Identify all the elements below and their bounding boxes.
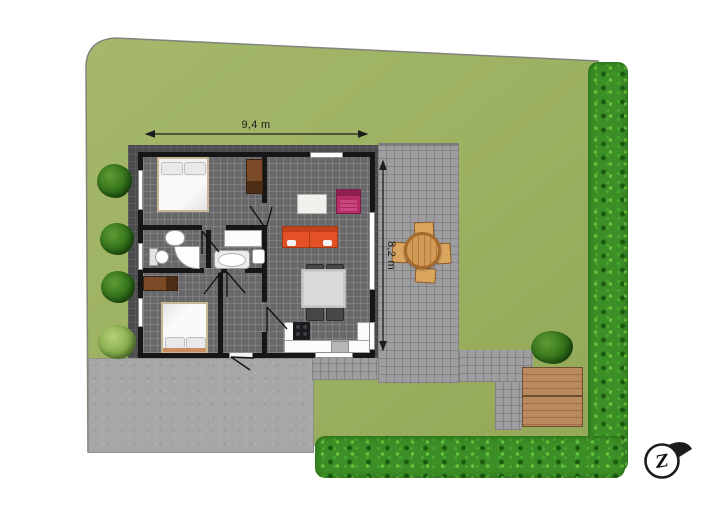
sofa-pillow-left [287, 240, 296, 246]
wardrobe-lower [247, 181, 262, 193]
window-west-bath [138, 243, 143, 270]
corner-shower-icon [174, 246, 200, 269]
wooden-deck [522, 367, 583, 427]
hedge-right [588, 62, 628, 472]
bathtub-basin [218, 253, 246, 267]
wall-hall-living-lower [262, 332, 267, 353]
width-dimension-label: 9,4 m [218, 119, 294, 131]
shrub-near-deck [531, 331, 573, 364]
window-west-bed2 [138, 298, 143, 327]
bed-1-duvet [159, 176, 207, 210]
bath2-closet [224, 230, 262, 247]
dining-table [301, 269, 346, 308]
shrub-1 [97, 164, 132, 198]
armchair [336, 189, 361, 214]
deck-lower-section [522, 396, 583, 427]
window-south-kitchen [315, 352, 353, 358]
bed-2 [161, 302, 208, 353]
window-east-kitchen [369, 322, 375, 350]
dresser [143, 276, 178, 291]
dresser-dark-section [166, 277, 177, 290]
house [138, 152, 375, 358]
bed-2-duvet [163, 304, 206, 337]
depth-dimension-label: 8,2 m [385, 228, 397, 284]
toilet-icon [155, 250, 169, 264]
sofa-pillow-right [323, 240, 332, 246]
bed-2-footboard [163, 348, 206, 352]
washbasin-icon [165, 230, 185, 246]
shrub-4-light [98, 325, 136, 359]
armchair-seat [340, 199, 357, 211]
stove-icon [293, 322, 310, 340]
window-north-living [310, 152, 343, 158]
shrub-2 [100, 223, 134, 255]
shrub-3 [101, 271, 135, 303]
patio-path-south [312, 358, 378, 380]
wall-bath-divider [206, 230, 211, 268]
burner-4 [303, 332, 307, 336]
sofa-seam [309, 232, 310, 247]
bathtub-icon [214, 250, 250, 269]
hedge-bottom [315, 436, 625, 478]
burner-3 [296, 332, 300, 336]
armchair-back [337, 190, 360, 196]
burner-1 [296, 325, 300, 329]
concrete-driveway [88, 358, 314, 453]
dining-chair-3 [306, 306, 324, 321]
window-west-bed1 [138, 170, 143, 210]
sofa [282, 226, 338, 248]
bath2-sink-icon [252, 249, 265, 264]
coffee-table [297, 194, 327, 214]
sofa-back [283, 227, 337, 232]
bed-1-pillow-left [161, 162, 183, 175]
front-door-opening [229, 352, 253, 358]
wall-bed2-hall [218, 273, 223, 353]
site-plan: Z 9,4 m 8,2 m [0, 0, 713, 519]
wardrobe [246, 159, 263, 194]
deck-upper-section [522, 367, 583, 396]
bed-1 [157, 157, 209, 212]
window-east-patio-door [369, 212, 375, 290]
burner-2 [303, 325, 307, 329]
dining-chair-4 [326, 306, 344, 321]
wall-bath-hall [245, 268, 267, 273]
garden-chair-south [415, 267, 437, 283]
garden-table [404, 232, 441, 269]
patio-path-to-deck [495, 382, 522, 430]
bed-1-pillow-right [184, 162, 206, 175]
